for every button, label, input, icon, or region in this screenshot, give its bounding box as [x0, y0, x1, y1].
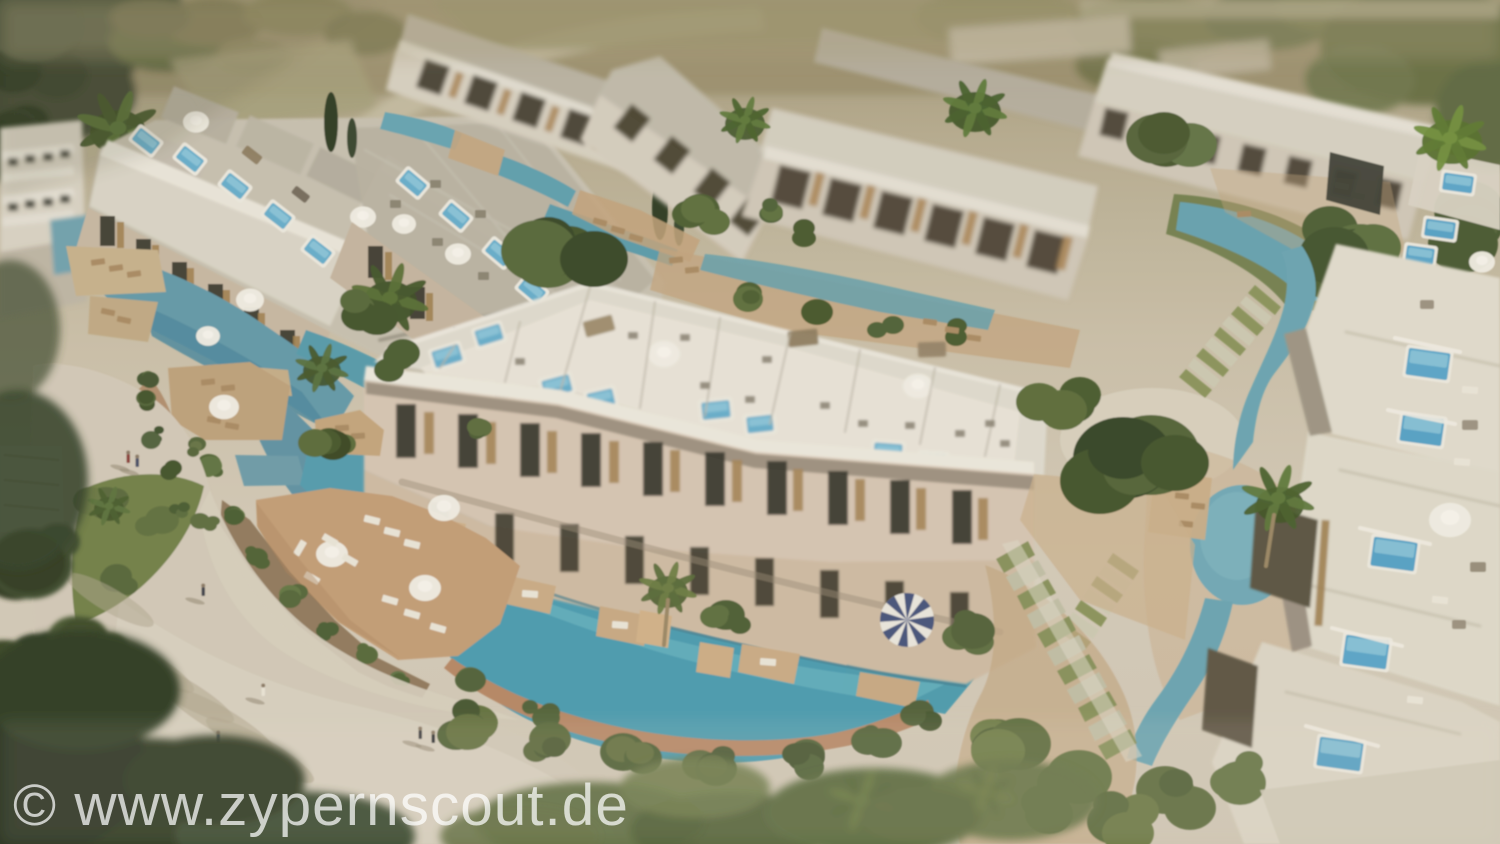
svg-text:© www.zypernscout.de: © www.zypernscout.de	[13, 773, 629, 838]
